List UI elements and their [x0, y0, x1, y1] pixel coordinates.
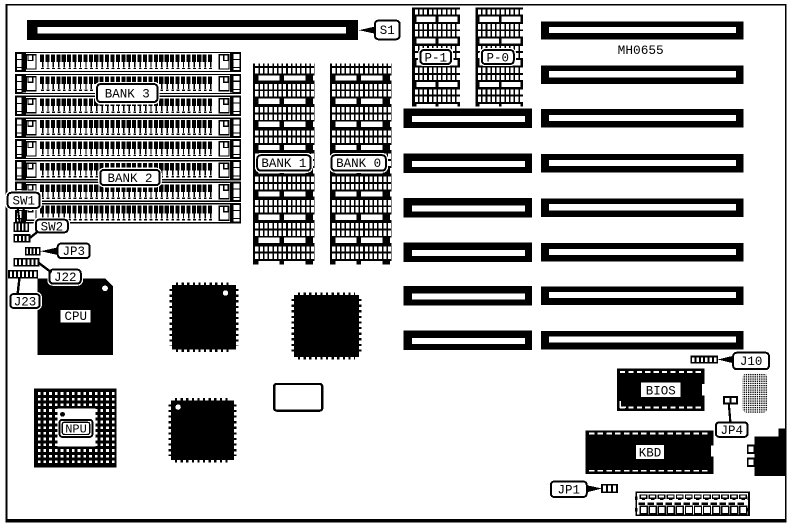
svg-text:BIOS: BIOS: [646, 384, 676, 398]
svg-text:P-0: P-0: [487, 51, 510, 65]
svg-text:J22: J22: [54, 271, 77, 285]
svg-text:BANK 1: BANK 1: [261, 157, 306, 171]
svg-text:BANK 3: BANK 3: [105, 87, 150, 101]
svg-text:BANK 2: BANK 2: [107, 172, 152, 186]
svg-text:JP3: JP3: [62, 245, 85, 259]
svg-text:CPU: CPU: [64, 310, 87, 324]
svg-text:P-1: P-1: [425, 51, 448, 65]
svg-text:SW2: SW2: [41, 220, 64, 234]
svg-text:MH0655: MH0655: [618, 43, 664, 58]
svg-text:KBD: KBD: [639, 447, 662, 461]
svg-text:SW1: SW1: [12, 195, 35, 209]
svg-text:NPU: NPU: [65, 422, 87, 436]
svg-text:S1: S1: [380, 24, 395, 38]
svg-text:JP4: JP4: [721, 424, 744, 438]
svg-text:JP1: JP1: [558, 484, 581, 498]
svg-text:J10: J10: [740, 355, 763, 369]
svg-text:BANK 0: BANK 0: [336, 157, 381, 171]
svg-text:J23: J23: [14, 295, 37, 309]
